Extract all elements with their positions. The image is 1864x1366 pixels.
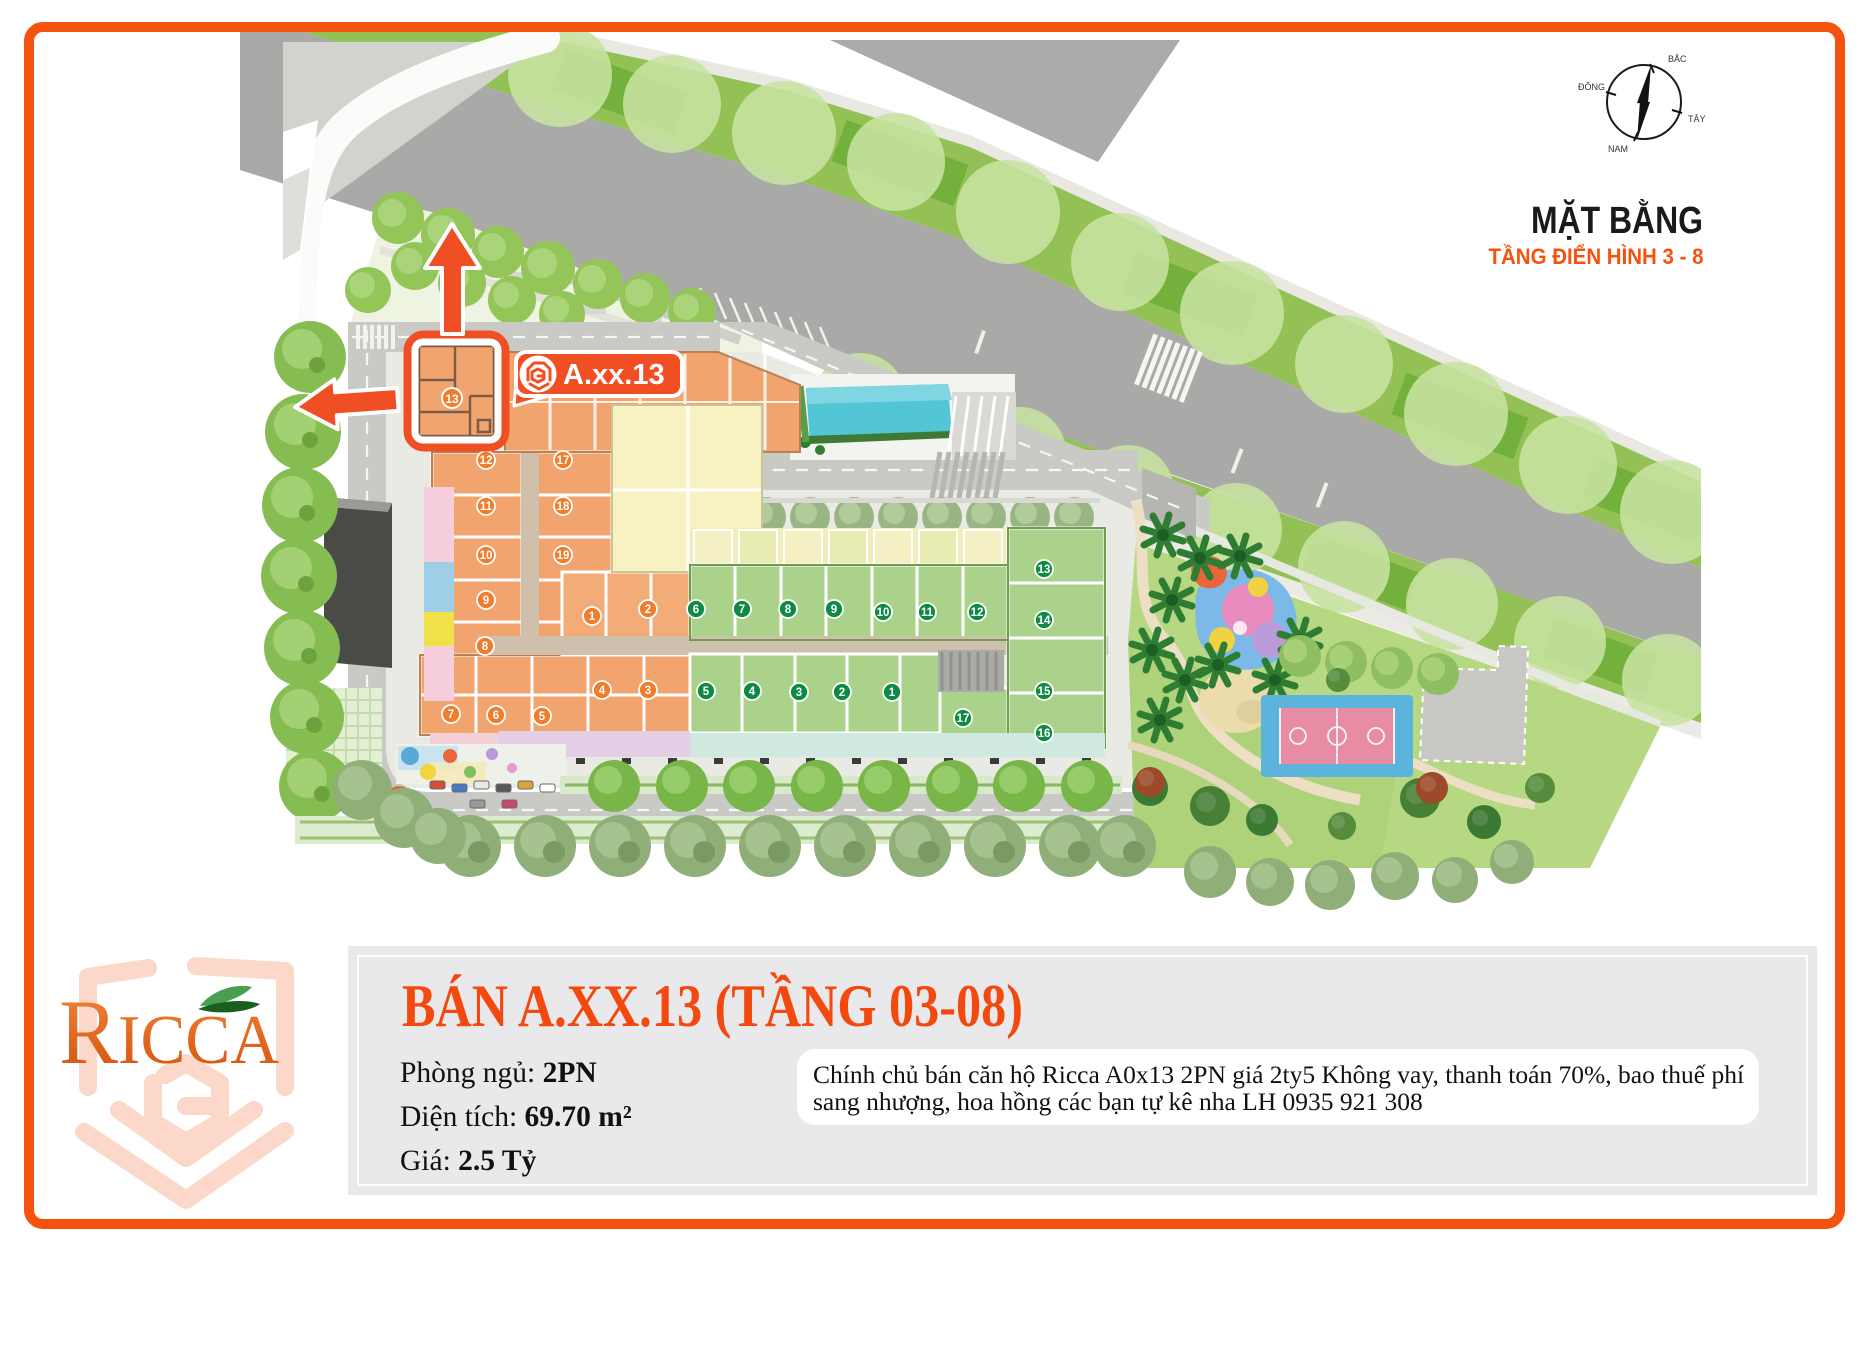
svg-text:17: 17	[557, 455, 570, 467]
svg-text:Chính chủ bán căn hộ Ricca A0x: Chính chủ bán căn hộ Ricca A0x13 2PN giá…	[813, 1060, 1744, 1089]
svg-text:3: 3	[645, 685, 651, 697]
svg-text:7: 7	[739, 604, 745, 616]
svg-text:BÁN A.XX.13 (TẦNG 03-08): BÁN A.XX.13 (TẦNG 03-08)	[402, 973, 1023, 1039]
svg-text:2: 2	[839, 687, 845, 699]
svg-text:16: 16	[1038, 728, 1051, 740]
svg-text:Diện tích: 69.70 m²: Diện tích: 69.70 m²	[400, 1101, 632, 1133]
svg-text:RICCA: RICCA	[59, 981, 279, 1083]
svg-text:10: 10	[480, 550, 493, 562]
svg-text:13: 13	[445, 392, 459, 406]
svg-text:MẶT BẰNG: MẶT BẰNG	[1531, 198, 1703, 242]
svg-text:17: 17	[957, 713, 970, 725]
svg-text:sang nhượng, hoa hồng các bạn: sang nhượng, hoa hồng các bạn tự kê nha …	[813, 1087, 1423, 1116]
svg-text:BẮC: BẮC	[1668, 54, 1687, 64]
svg-text:TẦNG ĐIỂN HÌNH 3 - 8: TẦNG ĐIỂN HÌNH 3 - 8	[1489, 244, 1704, 269]
svg-text:13: 13	[1038, 564, 1051, 576]
svg-text:11: 11	[480, 501, 493, 513]
svg-text:6: 6	[493, 710, 499, 722]
svg-text:19: 19	[557, 550, 570, 562]
svg-text:3: 3	[796, 687, 802, 699]
svg-text:Giá: 2.5 Tỷ: Giá: 2.5 Tỷ	[400, 1145, 537, 1177]
svg-text:7: 7	[448, 709, 454, 721]
svg-text:10: 10	[877, 607, 890, 619]
svg-text:1: 1	[889, 687, 896, 699]
svg-text:9: 9	[483, 595, 489, 607]
svg-text:12: 12	[971, 607, 984, 619]
svg-text:2: 2	[645, 604, 651, 616]
svg-text:ĐÔNG: ĐÔNG	[1578, 82, 1605, 92]
svg-text:9: 9	[831, 604, 837, 616]
svg-text:11: 11	[921, 607, 934, 619]
svg-text:6: 6	[693, 604, 699, 616]
svg-text:TÂY: TÂY	[1688, 114, 1706, 124]
svg-text:5: 5	[703, 686, 710, 698]
svg-text:8: 8	[785, 604, 792, 616]
svg-text:4: 4	[599, 685, 606, 697]
svg-text:18: 18	[557, 501, 570, 513]
svg-text:NAM: NAM	[1608, 144, 1628, 154]
svg-text:4: 4	[749, 686, 756, 698]
svg-text:8: 8	[482, 641, 489, 653]
svg-text:15: 15	[1038, 686, 1051, 698]
svg-text:5: 5	[539, 711, 546, 723]
svg-text:1: 1	[589, 611, 596, 623]
svg-text:14: 14	[1038, 615, 1051, 627]
svg-text:A.xx.13: A.xx.13	[563, 359, 665, 391]
svg-text:12: 12	[480, 455, 493, 467]
svg-text:Phòng ngủ: 2PN: Phòng ngủ: 2PN	[400, 1057, 597, 1089]
